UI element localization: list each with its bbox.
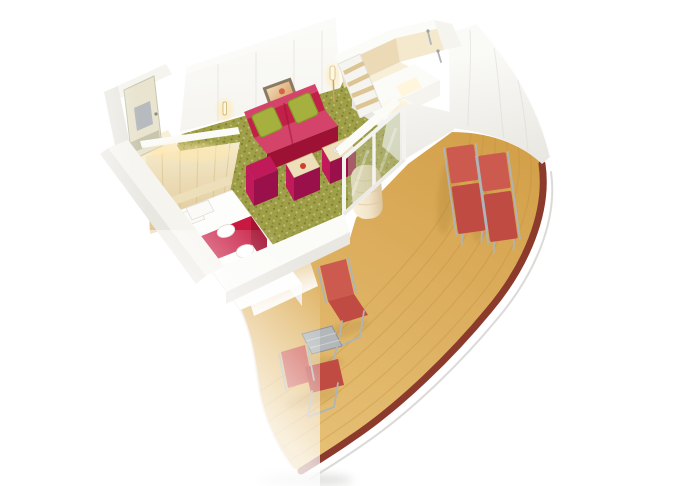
door-handle (154, 112, 157, 115)
fruit (300, 163, 306, 169)
floorplan-svg: Cabin 3D floor plan (0, 0, 680, 486)
lounger-backrest (446, 144, 479, 184)
fade-left (40, 40, 145, 280)
wall-lamp: Wall lamp (217, 99, 233, 121)
lounger-backrest (478, 152, 511, 192)
cabin-floorplan-render: Cabin 3D floor plan (0, 0, 680, 486)
wardrobe-light-glow (150, 143, 234, 161)
